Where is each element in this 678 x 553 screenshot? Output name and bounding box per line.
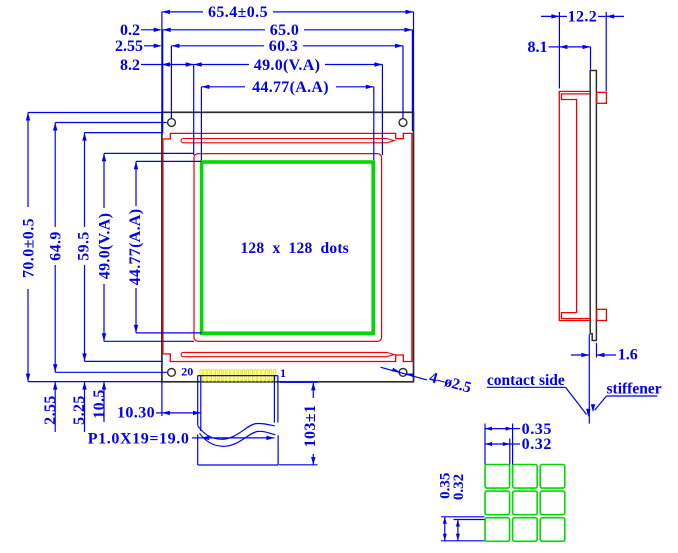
svg-text:2.55: 2.55 [115, 38, 143, 55]
svg-text:4–ø2.5: 4–ø2.5 [427, 369, 473, 397]
svg-text:44.77(A.A): 44.77(A.A) [127, 209, 144, 286]
svg-text:70.0±0.5: 70.0±0.5 [20, 218, 37, 278]
svg-text:5.25: 5.25 [71, 395, 88, 425]
svg-text:0.32: 0.32 [522, 436, 552, 453]
svg-text:44.77(A.A): 44.77(A.A) [252, 79, 329, 96]
svg-text:contact side: contact side [487, 372, 565, 389]
svg-text:64.9: 64.9 [48, 231, 65, 261]
svg-text:8.2: 8.2 [120, 57, 140, 74]
svg-text:103±1: 103±1 [302, 405, 319, 448]
svg-text:10.5: 10.5 [91, 389, 108, 419]
svg-text:49.0(V.A): 49.0(V.A) [254, 57, 320, 74]
svg-text:12.2: 12.2 [568, 9, 598, 26]
svg-text:65.4±0.5: 65.4±0.5 [208, 4, 268, 21]
svg-text:10.30: 10.30 [117, 404, 155, 421]
svg-text:128 x 128 dots: 128 x 128 dots [240, 240, 348, 257]
svg-text:stiffener: stiffener [607, 381, 662, 398]
svg-text:P1.0X19=19.0: P1.0X19=19.0 [88, 430, 190, 447]
svg-text:0.32: 0.32 [451, 474, 467, 500]
svg-text:1.6: 1.6 [618, 346, 638, 363]
svg-text:65.0: 65.0 [270, 22, 300, 39]
svg-text:1: 1 [280, 366, 286, 380]
svg-text:0.2: 0.2 [120, 22, 140, 39]
svg-text:20: 20 [181, 364, 193, 378]
svg-text:49.0(V.A): 49.0(V.A) [97, 213, 114, 279]
svg-text:8.1: 8.1 [528, 39, 548, 56]
svg-text:2.55: 2.55 [42, 395, 59, 425]
svg-text:59.5: 59.5 [76, 231, 93, 261]
svg-text:60.3: 60.3 [269, 38, 299, 55]
